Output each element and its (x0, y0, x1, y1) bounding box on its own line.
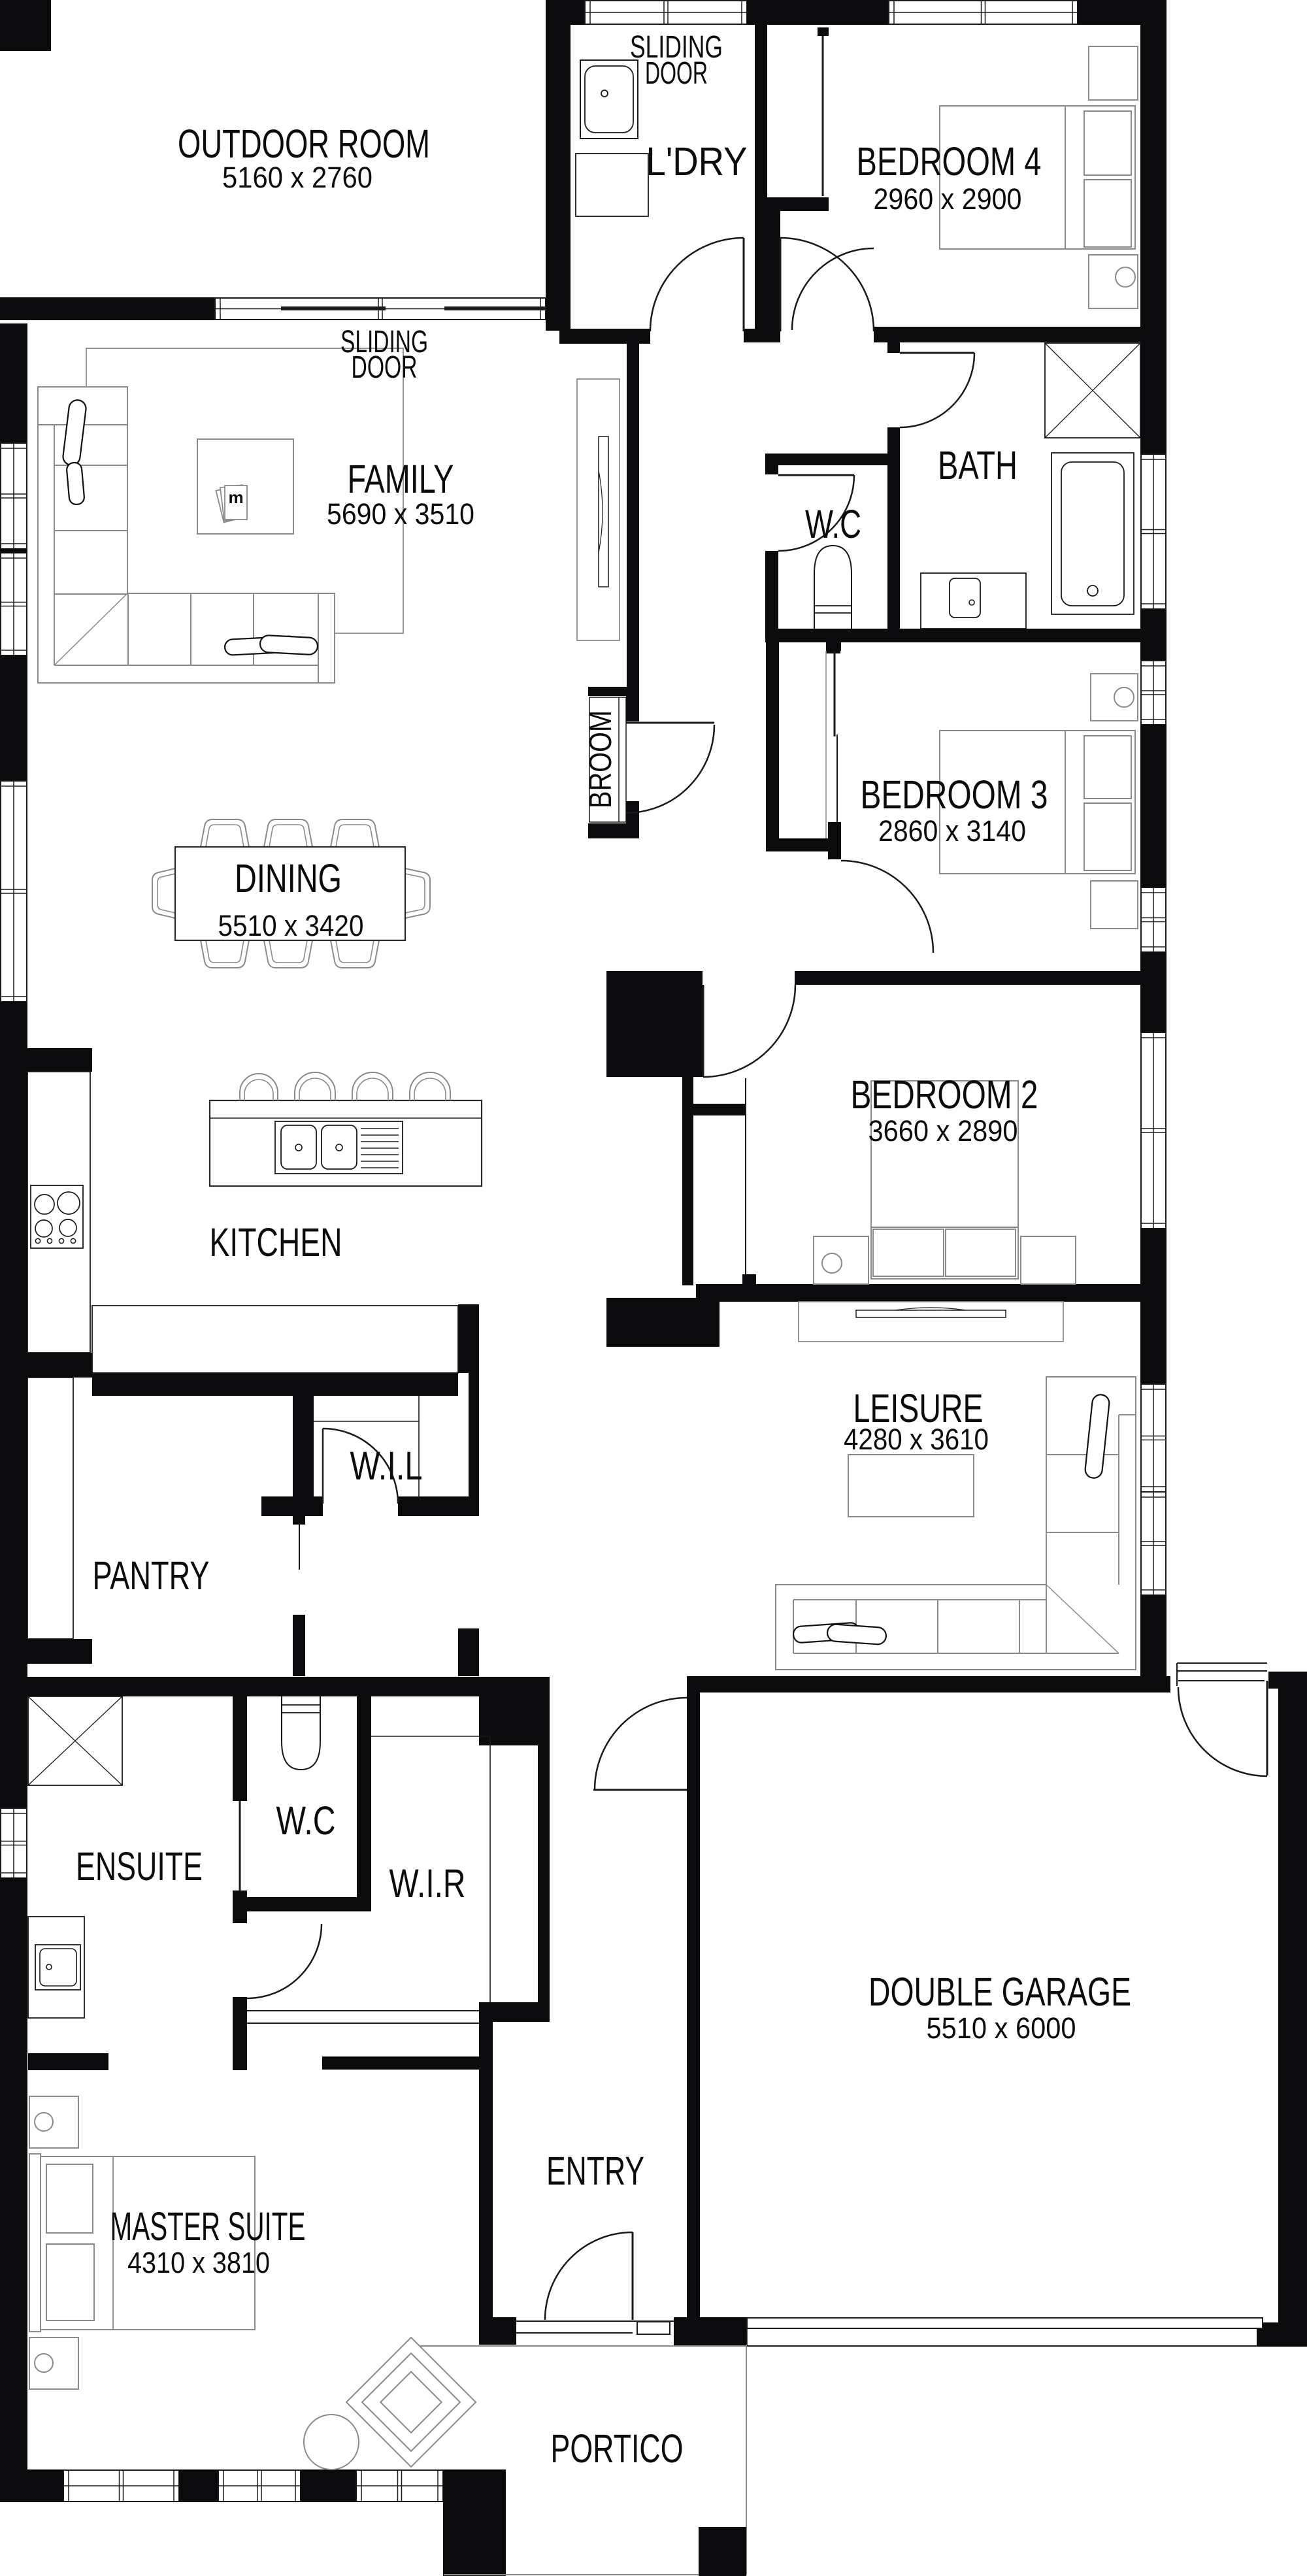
svg-text:m: m (228, 487, 243, 507)
svg-text:PORTICO: PORTICO (551, 2426, 684, 2471)
svg-text:L'DRY: L'DRY (646, 139, 748, 184)
svg-text:W.C: W.C (805, 502, 861, 546)
svg-text:ENTRY: ENTRY (546, 2149, 644, 2193)
svg-text:BEDROOM 2: BEDROOM 2 (851, 1072, 1038, 1117)
svg-text:5160 x 2760: 5160 x 2760 (222, 161, 372, 194)
svg-text:MASTER SUITE: MASTER SUITE (110, 2204, 306, 2249)
svg-text:2960 x 2900: 2960 x 2900 (874, 182, 1022, 216)
svg-text:W.C: W.C (276, 1798, 336, 1843)
svg-text:2860 x 3140: 2860 x 3140 (878, 814, 1026, 848)
svg-text:BROOM: BROOM (584, 710, 618, 808)
svg-text:DOOR: DOOR (645, 56, 708, 91)
svg-text:BEDROOM 4: BEDROOM 4 (857, 139, 1042, 184)
svg-text:DOOR: DOOR (352, 350, 418, 385)
svg-text:W.I.R: W.I.R (389, 1861, 466, 1906)
svg-text:OUTDOOR ROOM: OUTDOOR ROOM (178, 122, 430, 166)
svg-text:4310 x 3810: 4310 x 3810 (127, 2246, 270, 2279)
svg-text:5510 x 6000: 5510 x 6000 (927, 2011, 1076, 2045)
svg-text:W.I.L: W.I.L (350, 1444, 423, 1488)
svg-text:3660 x 2890: 3660 x 2890 (869, 1114, 1018, 1148)
svg-text:5690 x 3510: 5690 x 3510 (327, 497, 474, 531)
svg-text:DOUBLE GARAGE: DOUBLE GARAGE (869, 1970, 1131, 2014)
svg-text:ENSUITE: ENSUITE (76, 1844, 203, 1889)
svg-text:KITCHEN: KITCHEN (210, 1220, 342, 1264)
svg-text:BATH: BATH (938, 443, 1017, 487)
svg-text:FAMILY: FAMILY (348, 457, 454, 501)
svg-text:DINING: DINING (235, 856, 342, 900)
svg-text:5510 x 3420: 5510 x 3420 (218, 909, 364, 942)
svg-text:PANTRY: PANTRY (93, 1553, 210, 1598)
svg-text:4280 x 3610: 4280 x 3610 (844, 1423, 989, 1456)
svg-text:BEDROOM 3: BEDROOM 3 (861, 772, 1048, 817)
